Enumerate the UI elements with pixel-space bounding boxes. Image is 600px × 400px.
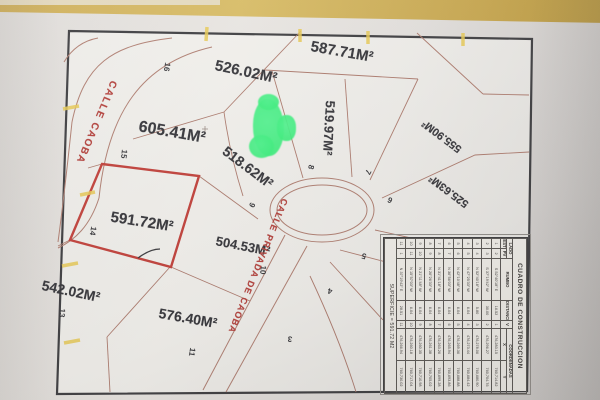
table-cell: 760,710.98 [415, 361, 424, 394]
construction-table: CUADRO DE CONSTRUCCION LADO RUMBO DISTAN… [383, 237, 528, 392]
table-cell: 476,265.94 [444, 329, 453, 361]
table-row: 111N 37°19'42" E28.5111476,266.94760,730… [397, 239, 407, 394]
table-cell: N 26°26'33" W [425, 259, 434, 301]
table-cell: 11 [406, 249, 415, 259]
table-cell: 6 [444, 239, 453, 249]
table-cell: 8 [425, 239, 434, 249]
table-cell: 476,260.18 [406, 329, 415, 361]
table-cell: S 52°40'18" E [491, 259, 500, 301]
table-cell: 16.52 [491, 301, 500, 321]
col-header-est: EST [501, 239, 507, 249]
table-cell: 3 [472, 321, 481, 329]
table-cell: N 21°11'48" W [415, 259, 424, 301]
table-cell: 476,273.44 [463, 329, 472, 361]
table-row: 45N 47°25'33" W6.044476,273.44760,684.42 [463, 239, 472, 394]
table-cell: 9 [415, 321, 424, 329]
table-cell: 5 [463, 249, 472, 259]
table-cell: 476,266.94 [397, 329, 407, 361]
table-cell: 6.04 [463, 301, 472, 321]
construction-table-box: CUADRO DE CONSTRUCCION LADO RUMBO DISTAN… [383, 237, 528, 392]
table-cell: 5.80 [472, 301, 481, 321]
lot-number-11: 11 [187, 347, 197, 357]
table-cell: 476,283.15 [491, 329, 500, 361]
table-cell: 760,693.86 [444, 361, 453, 394]
table-cell: 2 [491, 249, 500, 259]
table-cell: 3 [482, 249, 491, 259]
table-row: 89N 26°26'33" W6.048476,261.38760,705.02 [425, 239, 434, 394]
table-cell: N 37°19'42" E [397, 259, 407, 301]
table-cell: N 15°57'03" W [406, 259, 415, 301]
table-row: 34N 52°40'18" W5.803476,278.06760,680.90 [472, 239, 481, 394]
table-cell: 4 [463, 239, 472, 249]
lot-number-13: 13 [57, 308, 67, 318]
lot-number-15: 15 [119, 149, 129, 159]
table-cell: N 31°41'18" W [434, 259, 443, 301]
table-cell: 9 [415, 239, 424, 249]
table-cell: 7 [444, 249, 453, 259]
table-superficie: SUPERFICIE = 591.72 M2 [385, 239, 397, 394]
table-cell: 760,684.42 [463, 361, 472, 394]
table-cell: 6.04 [434, 301, 443, 321]
table-cell: 760,705.02 [425, 361, 434, 394]
table-cell: 760,730.02 [397, 361, 407, 394]
table-cell: 4 [472, 249, 481, 259]
green-highlight-top [258, 94, 279, 110]
table-cell: 6.04 [425, 301, 434, 321]
table-cell: 476,269.36 [453, 329, 462, 361]
table-cell: 5 [453, 321, 462, 329]
table-cell: 4 [463, 321, 472, 329]
lot-number-16: 16 [162, 62, 172, 72]
table-cell: 6 [444, 321, 453, 329]
table-cell: 6.04 [444, 301, 453, 321]
table-cell: 476,263.26 [434, 329, 443, 361]
col-header-pv: PV [501, 249, 507, 259]
table-cell: 10 [406, 321, 415, 329]
table-row: 12S 52°40'18" E16.521476,283.15760,714.8… [491, 239, 500, 394]
table-cell: N 42°10'48" W [453, 259, 462, 301]
table-cell: 1 [491, 239, 500, 249]
table-cell: 8 [425, 321, 434, 329]
table-cell: 30.00 [482, 301, 491, 321]
table-cell: 476,260.35 [415, 329, 424, 361]
table-cell: 760,717.04 [406, 361, 415, 394]
table-cell: 476,278.06 [472, 329, 481, 361]
col-header-v: V [501, 321, 513, 329]
table-cell: 6.04 [453, 301, 462, 321]
table-cell: 760,699.28 [434, 361, 443, 394]
table-cell: 6.04 [415, 301, 424, 321]
area-label-519-97: 519.97M² [320, 100, 338, 156]
table-cell: 476,296.27 [482, 329, 491, 361]
table-cell: 476,261.38 [425, 329, 434, 361]
table-cell: 9 [425, 249, 434, 259]
table-cell: 5 [453, 239, 462, 249]
table-cell: 7 [434, 239, 443, 249]
table-cell: 6 [453, 249, 462, 259]
green-highlight-arm [277, 115, 296, 141]
construction-table-grid: CUADRO DE CONSTRUCCION LADO RUMBO DISTAN… [384, 238, 527, 394]
table-cell: 760,704.76 [482, 361, 491, 394]
table-row: 1011N 15°57'03" W6.0410476,260.18760,717… [406, 239, 415, 394]
table-cell: 7 [434, 321, 443, 329]
table-cell: N 36°56'03" W [444, 259, 453, 301]
col-header-y: Y [501, 361, 507, 394]
table-cell: 11 [397, 239, 407, 249]
table-cell: 1 [491, 321, 500, 329]
table-cell: 2 [482, 321, 491, 329]
table-cell: 2 [482, 239, 491, 249]
col-header-lado: LADO [507, 239, 513, 259]
table-cell: S 37°19'42" W [482, 259, 491, 301]
table-cell: 10 [415, 249, 424, 259]
table-cell: 1 [397, 249, 407, 259]
table-cell: 6.04 [406, 301, 415, 321]
table-row: 23S 37°19'42" W30.002476,296.27760,704.7… [482, 239, 491, 394]
table-cell: 10 [406, 239, 415, 249]
table-cell: 3 [472, 239, 481, 249]
table-row: 67N 36°56'03" W6.046476,265.94760,693.86 [444, 239, 453, 394]
green-highlight-foot [249, 135, 274, 158]
table-cell: N 47°25'33" W [463, 259, 472, 301]
table-cell: 760,688.88 [453, 361, 462, 394]
table-cell: 8 [434, 249, 443, 259]
table-row: 78N 31°41'18" W6.047476,263.26760,699.28 [434, 239, 443, 394]
table-row: 56N 42°10'48" W6.045476,269.36760,688.88 [453, 239, 462, 394]
col-header-rumbo: RUMBO [501, 259, 513, 301]
table-cell: N 52°40'18" W [472, 259, 481, 301]
col-header-x: X [501, 329, 507, 361]
lot-number-14: 14 [88, 226, 98, 236]
table-cell: 28.51 [397, 301, 407, 321]
table-cell: 760,680.90 [472, 361, 481, 394]
table-row: 910N 21°11'48" W6.049476,260.35760,710.9… [415, 239, 424, 394]
col-header-distancia: DISTANCIA [501, 301, 513, 321]
table-title: CUADRO DE CONSTRUCCION [513, 239, 527, 394]
table-cell: 11 [397, 321, 407, 329]
col-header-coordenadas: COORDENADAS [507, 329, 513, 394]
table-cell: 760,714.82 [491, 361, 500, 394]
